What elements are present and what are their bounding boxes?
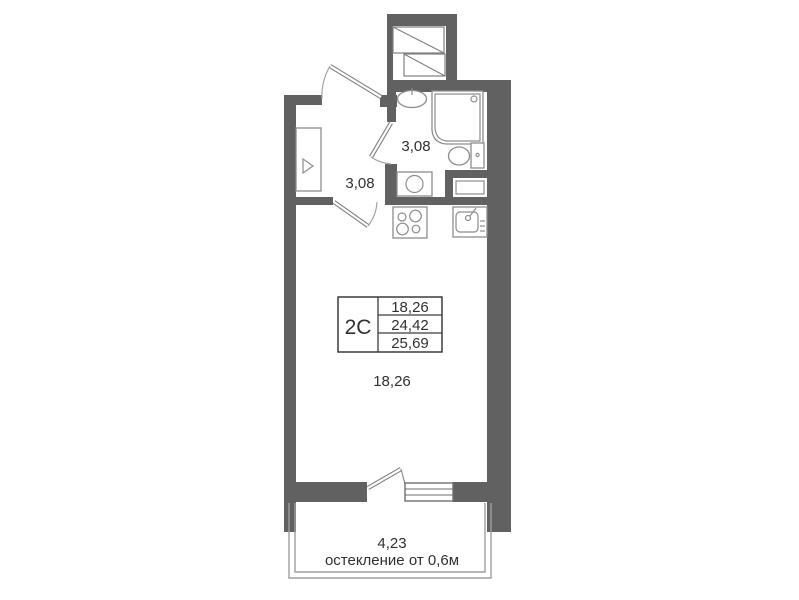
washing-machine — [397, 172, 432, 196]
bottom-wall-right — [453, 482, 487, 502]
niche-left-wall — [445, 170, 453, 205]
balcony-area-label: 4,23 — [377, 535, 406, 552]
info-table-row-2: 24,42 — [391, 317, 429, 334]
balcony-door-jamb — [401, 469, 405, 484]
living-room-door-swing-arc — [368, 202, 377, 226]
shower — [432, 91, 483, 144]
toilet — [449, 143, 485, 168]
wardrobe-body — [296, 128, 321, 191]
info-table-row-3: 25,69 — [391, 335, 429, 352]
bathroom-door — [371, 123, 391, 164]
balcony-door-leaf-inner — [368, 469, 401, 488]
kitchen-wall — [385, 197, 487, 205]
bathroom-door-leaf-inner — [371, 123, 391, 157]
hallway-area-label: 3,08 — [345, 175, 374, 192]
hallway-bottom-wall — [296, 197, 333, 205]
living-area-label: 18,26 — [373, 373, 411, 390]
entrance-door-swing-arc — [322, 66, 330, 99]
unit-info-table: 2C 18,26 24,42 25,69 — [338, 297, 442, 352]
toilet-tank — [471, 143, 484, 168]
right-outer-wall — [487, 80, 511, 532]
balcony-glazing-label: остекление от 0,6м — [325, 552, 459, 569]
wardrobe — [296, 128, 321, 191]
ventilation-shaft — [387, 14, 457, 88]
shower-outer — [432, 91, 483, 144]
floor-plan: 2C 18,26 24,42 25,69 3,08 3,08 18,26 4,2… — [0, 0, 799, 600]
entrance-door — [322, 66, 381, 99]
unit-type-label: 2C — [345, 316, 372, 339]
window-frame — [405, 483, 453, 501]
bathroom-door-swing-arc — [371, 157, 391, 164]
balcony-left-pier — [284, 502, 296, 532]
balcony-door — [368, 469, 405, 488]
toilet-bowl — [449, 147, 470, 165]
bathroom-wall-upper — [387, 92, 396, 122]
kitchen-sink — [453, 207, 487, 237]
floor-plan-page: 2C 18,26 24,42 25,69 3,08 3,08 18,26 4,2… — [0, 0, 799, 600]
plumbing-niche — [453, 178, 487, 197]
stove — [393, 207, 427, 238]
living-room-door — [334, 202, 377, 226]
left-outer-wall — [284, 95, 296, 532]
balcony-window — [405, 483, 453, 501]
living-room-door-leaf-inner — [334, 202, 368, 226]
entrance-door-leaf-inner — [330, 66, 381, 97]
bottom-wall-left — [296, 482, 367, 502]
bathroom-area-label: 3,08 — [401, 138, 430, 155]
info-table-row-1: 18,26 — [391, 299, 429, 316]
entry-wall-left — [284, 95, 322, 105]
